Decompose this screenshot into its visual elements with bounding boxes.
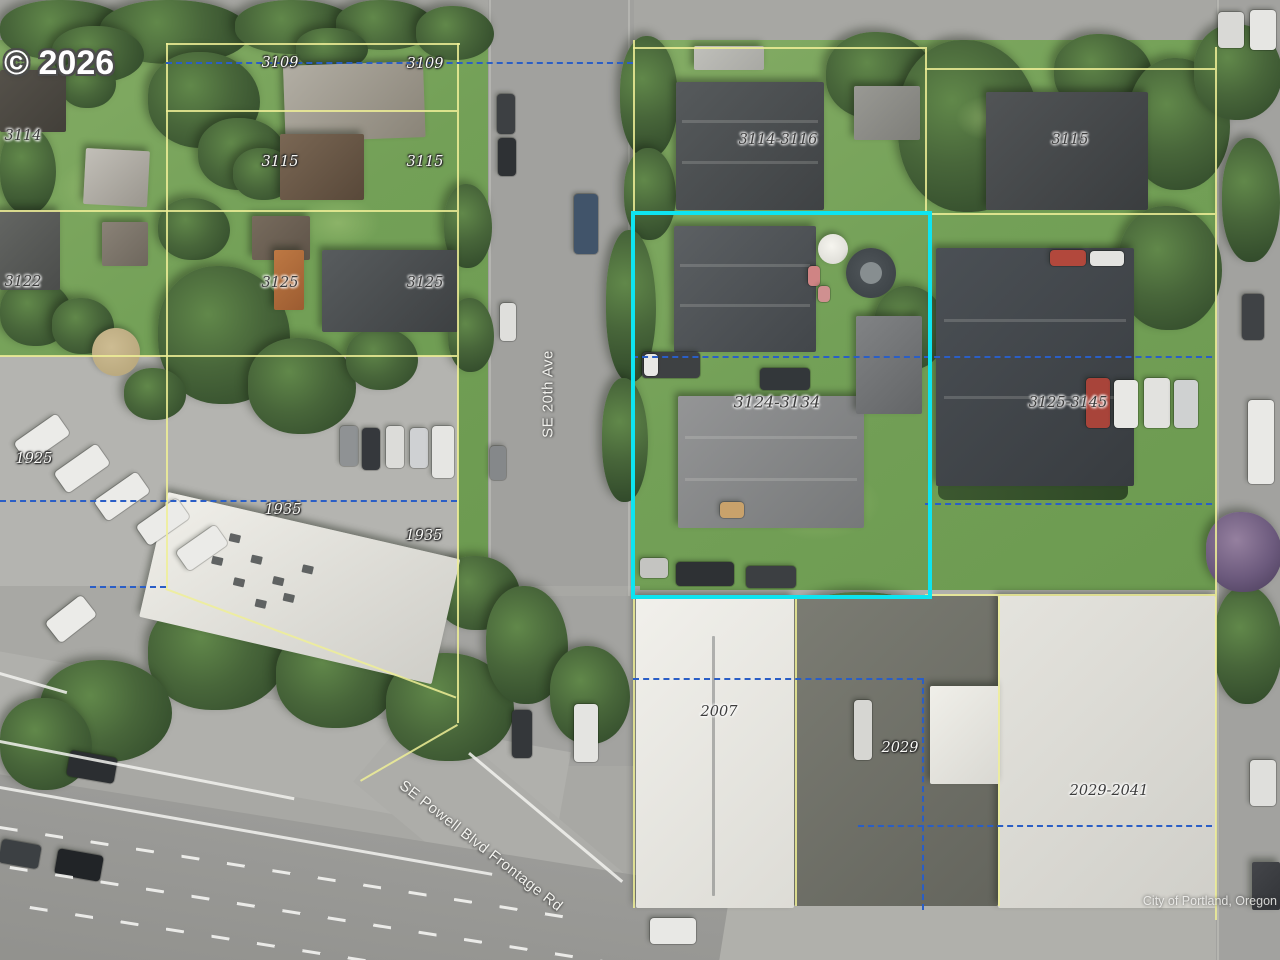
parked-car [1218, 12, 1244, 48]
parcel-label: 3125 [262, 275, 299, 291]
tree-canopy [1222, 138, 1280, 262]
parked-car [1242, 294, 1264, 340]
parcel-label: 3114-3116 [739, 132, 818, 148]
roof-ridge [682, 120, 818, 123]
rooftop-vent [272, 576, 285, 586]
parked-car [1090, 251, 1124, 266]
parcel-line [925, 68, 1215, 70]
parked-car [1250, 10, 1276, 50]
tree-canopy [248, 338, 356, 434]
roof-ridge [682, 161, 818, 164]
parcel-label: 3122 [5, 274, 42, 290]
house [322, 250, 458, 332]
parcel-line [166, 43, 168, 588]
parcel-line [795, 596, 797, 906]
tree-canopy [346, 328, 418, 390]
parked-car [362, 428, 380, 470]
above-ground-pool [92, 328, 140, 376]
parcel-label: 3124-3134 [734, 393, 821, 412]
roof-seam [712, 636, 715, 896]
tree-canopy [620, 36, 678, 158]
parcel-label: 1935 [406, 528, 443, 544]
zoning-overlay-line [90, 586, 166, 588]
parcel-label: 3109 [262, 55, 299, 71]
rooftop-vent [250, 555, 263, 565]
parcel-line [925, 47, 927, 213]
parked-car [498, 138, 516, 176]
zoning-overlay-line [922, 678, 924, 910]
apartment [936, 248, 1134, 486]
parked-car [1050, 250, 1086, 266]
flowering-tree [1206, 512, 1280, 592]
parcel-label: 3115 [407, 154, 444, 170]
parked-car [410, 428, 428, 468]
aerial-parcel-map: 310931093114311531153114-311631153122312… [0, 0, 1280, 960]
parked-van [574, 704, 598, 762]
parcel-line [166, 110, 457, 112]
street-name-label: SE 20th Ave [540, 350, 557, 438]
parcel-label: 1925 [16, 451, 53, 467]
rooftop-vent [233, 577, 246, 587]
parcel-label: 3114 [5, 128, 42, 144]
parcel-label: 3109 [407, 56, 444, 72]
zoning-overlay-line [925, 503, 1212, 505]
rooftop-vent [301, 564, 314, 574]
parcel-label: 2029-2041 [1070, 783, 1149, 799]
parked-car [1174, 380, 1198, 428]
parcel-line [0, 210, 457, 212]
tree-canopy [158, 198, 230, 260]
parked-car [512, 710, 532, 758]
parked-car [490, 446, 506, 480]
parked-car [1144, 378, 1170, 428]
parcel-line [457, 43, 459, 723]
parked-car [1250, 760, 1276, 806]
parked-car [650, 918, 696, 944]
parcel-label: 3115 [262, 154, 299, 170]
parcel-line [998, 596, 1000, 906]
parcel-line [0, 355, 457, 357]
parcel-label: 2029 [882, 740, 919, 756]
house [283, 61, 426, 142]
parcel-line [166, 43, 460, 45]
parked-car [340, 426, 358, 466]
zoning-overlay-line [633, 678, 923, 680]
zoning-overlay-line [0, 500, 457, 502]
parked-van [1248, 400, 1274, 484]
parcel-line [925, 213, 1215, 215]
rooftop-vent [229, 533, 242, 543]
canopy [930, 686, 1000, 784]
dumpster [574, 194, 598, 254]
zoning-overlay-line [166, 62, 633, 64]
parcel-label: 2007 [701, 704, 738, 720]
parked-car [500, 303, 516, 341]
parked-car [386, 426, 404, 468]
parcel-line [633, 47, 925, 49]
roof-ridge [944, 319, 1126, 322]
trailer [854, 700, 872, 760]
commercial-building [998, 596, 1216, 908]
parked-van [432, 426, 454, 478]
house [986, 92, 1148, 210]
parked-car [1114, 380, 1138, 428]
rooftop-vent [283, 593, 296, 603]
parcel-label: 3125-3145 [1029, 395, 1108, 411]
copyright-watermark: © 2026 [4, 44, 114, 83]
house [83, 148, 150, 207]
parcel-label: 1935 [265, 502, 302, 518]
shed [854, 86, 920, 140]
rooftop-vent [254, 599, 267, 609]
tree-canopy [416, 6, 494, 60]
parked-car [497, 94, 515, 134]
parcel-line [925, 594, 1215, 596]
parcel-label: 3125 [407, 275, 444, 291]
tree-canopy [1214, 586, 1280, 704]
canopy [694, 46, 764, 70]
map-attribution: City of Portland, Oregon [1143, 894, 1277, 908]
parcel-line [1215, 47, 1217, 920]
shed [102, 222, 148, 266]
rooftop-vent [211, 556, 224, 566]
parcel-label: 3115 [1052, 132, 1089, 148]
commercial-building [636, 596, 794, 908]
zoning-overlay-line [858, 825, 1212, 827]
tree-canopy [124, 368, 186, 420]
